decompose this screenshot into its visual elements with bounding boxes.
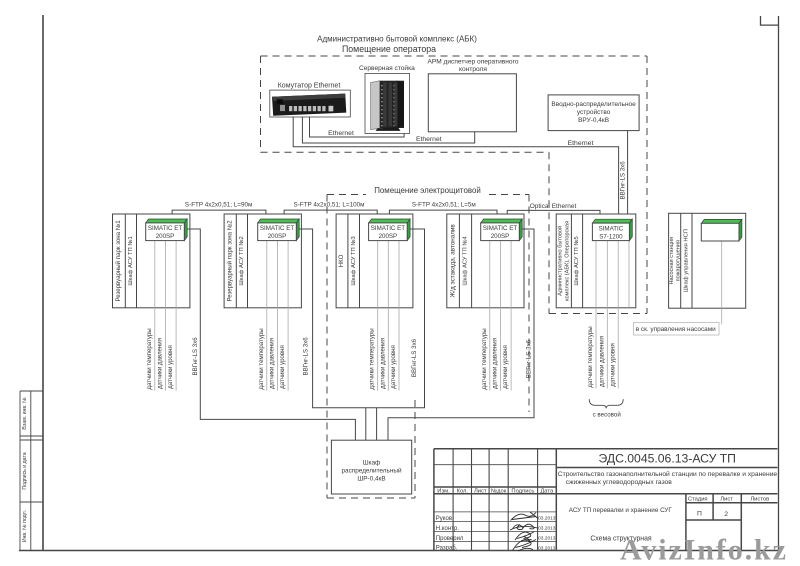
svg-text:Ethernet: Ethernet	[416, 136, 442, 143]
svg-text:03.2013: 03.2013	[538, 526, 556, 532]
svg-text:Административно бытовой компле: Административно бытовой комплекс (АБК)	[317, 35, 477, 44]
svg-text:200SP: 200SP	[268, 233, 287, 240]
svg-text:Шкаф: Шкаф	[363, 459, 381, 466]
svg-text:S-FTP 4x2x0,51; L=90м: S-FTP 4x2x0,51; L=90м	[185, 202, 252, 209]
svg-text:Подпись и дата: Подпись и дата	[22, 452, 28, 489]
svg-text:Шкаф АСУ ТП №3: Шкаф АСУ ТП №3	[351, 236, 357, 285]
svg-text:Ж/д эстакада, автоналив: Ж/д эстакада, автоналив	[449, 224, 456, 298]
svg-text:датчики давления: датчики давления	[491, 338, 498, 389]
svg-text:Шкаф АСУ ТП №4: Шкаф АСУ ТП №4	[463, 235, 469, 285]
svg-text:датчики температуры: датчики температуры	[369, 328, 376, 389]
svg-text:Листов: Листов	[750, 497, 769, 503]
svg-text:Серверная стойка: Серверная стойка	[359, 64, 415, 72]
svg-text:200SP: 200SP	[156, 233, 175, 240]
svg-text:АСУ ТП перевалки и хранение СУ: АСУ ТП перевалки и хранение СУГ	[569, 507, 673, 514]
svg-text:Optical Ethernet: Optical Ethernet	[530, 203, 577, 210]
svg-text:датчики уровня: датчики уровня	[167, 345, 174, 389]
svg-text:03.2013: 03.2013	[538, 516, 556, 522]
svg-text:SIMATIC ET: SIMATIC ET	[371, 225, 405, 232]
svg-text:ВРУ-0,4кВ: ВРУ-0,4кВ	[578, 117, 609, 124]
svg-text:ВВГнг-LS 3х6: ВВГнг-LS 3х6	[619, 161, 626, 200]
svg-text:пожаротушения: пожаротушения	[675, 240, 681, 281]
svg-text:Дата: Дата	[540, 489, 554, 495]
svg-text:Кол.: Кол.	[457, 489, 469, 495]
svg-text:датчики уровня: датчики уровня	[609, 343, 616, 387]
svg-text:SIMATIC ET: SIMATIC ET	[148, 225, 182, 232]
svg-text:SIMATIC ET: SIMATIC ET	[260, 225, 294, 232]
svg-text:SIMATIC: SIMATIC	[599, 225, 624, 232]
svg-text:распределительный: распределительный	[341, 466, 401, 474]
svg-text:контроля: контроля	[459, 66, 487, 73]
svg-text:03.2013: 03.2013	[538, 545, 556, 551]
svg-text:датчики уровня: датчики уровня	[279, 345, 286, 389]
svg-text:датчики давления: датчики давления	[268, 338, 275, 389]
svg-text:с весовой: с весовой	[593, 411, 622, 418]
svg-text:датчики давления: датчики давления	[599, 336, 606, 387]
svg-text:ВВГнг-LS 3х6: ВВГнг-LS 3х6	[192, 337, 199, 376]
svg-text:П: П	[697, 510, 702, 517]
svg-text:комплекс (АБК), Операторская: комплекс (АБК), Операторская	[564, 221, 570, 301]
svg-text:S7-1200: S7-1200	[599, 233, 623, 240]
svg-text:Шкаф АСУ ТП №5: Шкаф АСУ ТП №5	[574, 236, 580, 285]
svg-text:ШР-0,4кВ: ШР-0,4кВ	[357, 475, 385, 482]
svg-text:Насосная станция: Насосная станция	[669, 237, 675, 285]
svg-text:Комутатор Ethernet: Комутатор Ethernet	[278, 82, 341, 89]
svg-text:03.2013: 03.2013	[538, 536, 556, 542]
svg-text:200SP: 200SP	[379, 233, 398, 240]
svg-text:устройство: устройство	[577, 108, 611, 116]
svg-text:Изм.: Изм.	[437, 489, 450, 495]
svg-text:Лист: Лист	[474, 489, 487, 495]
svg-text:200SP: 200SP	[491, 233, 510, 240]
svg-text:ВВГнг-LS 3х6: ВВГнг-LS 3х6	[411, 338, 418, 377]
svg-text:SIMATIC ET: SIMATIC ET	[483, 225, 517, 232]
svg-text:Ethernet: Ethernet	[328, 130, 354, 137]
svg-text:датчики давления: датчики давления	[379, 338, 386, 389]
svg-text:Инв. № подл.: Инв. № подл.	[22, 510, 28, 542]
svg-text:АРМ диспетчер оперативного: АРМ диспетчер оперативного	[427, 59, 518, 66]
svg-text:датчики температуры: датчики температуры	[258, 328, 265, 389]
svg-text:датчики температуры: датчики температуры	[146, 328, 153, 389]
svg-text:Резервуарный парк зона №2: Резервуарный парк зона №2	[226, 220, 233, 302]
svg-text:НКО: НКО	[338, 254, 345, 267]
svg-text:Ethernet: Ethernet	[568, 140, 594, 147]
svg-text:Вводно-распределительное: Вводно-распределительное	[551, 101, 636, 108]
svg-text:Шкаф управления НСП: Шкаф управления НСП	[684, 229, 690, 292]
svg-text:Административно бытовой: Административно бытовой	[557, 226, 564, 296]
svg-text:Помещение электрощитовой: Помещение электрощитовой	[374, 186, 481, 195]
svg-text:датчики уровня: датчики уровня	[390, 345, 397, 389]
svg-text:ВВГнг-LS 3х6: ВВГнг-LS 3х6	[303, 337, 310, 376]
svg-text:Лист: Лист	[720, 497, 733, 503]
svg-text:Строительство газонаполнительн: Строительство газонаполнительной станции…	[558, 470, 778, 478]
svg-text:Проверил: Проверил	[436, 536, 464, 542]
svg-text:Шкаф АСУ ТП №1: Шкаф АСУ ТП №1	[128, 236, 134, 285]
svg-text:датчики температуры: датчики температуры	[481, 328, 488, 389]
svg-text:датчики давления: датчики давления	[156, 338, 163, 389]
svg-text:Взам. инв. №: Взам. инв. №	[22, 397, 28, 430]
svg-text:Стадия: Стадия	[688, 497, 708, 503]
svg-text:S-FTP 4x2x0,51; L=5м: S-FTP 4x2x0,51; L=5м	[412, 202, 476, 209]
svg-text:ВВГнг-LS 3х6: ВВГнг-LS 3х6	[525, 339, 532, 378]
svg-text:Помещение оператора: Помещение оператора	[342, 44, 436, 54]
svg-text:Подпись: Подпись	[511, 489, 534, 495]
svg-text:Разраб.: Разраб.	[436, 546, 458, 552]
svg-text:Шкаф АСУ ТП №2: Шкаф АСУ ТП №2	[239, 236, 245, 285]
svg-text:2: 2	[724, 511, 728, 518]
svg-text:Резервуарный парк зона №1: Резервуарный парк зона №1	[115, 220, 122, 302]
svg-text:Н.контр.: Н.контр.	[436, 526, 459, 532]
svg-text:AvizInfo.kz: AvizInfo.kz	[620, 534, 788, 566]
svg-text:ЭДС.0045.06.13-АСУ ТП: ЭДС.0045.06.13-АСУ ТП	[598, 452, 735, 466]
svg-text:датчики температуры: датчики температуры	[587, 326, 594, 387]
svg-text:в ск. управления насосами: в ск. управления насосами	[636, 326, 716, 333]
svg-text:сжиженных углеводородных газов: сжиженных углеводородных газов	[566, 479, 673, 486]
svg-text:№док: №док	[491, 489, 507, 495]
svg-text:датчики уровня: датчики уровня	[502, 345, 509, 389]
svg-text:Руков.: Руков.	[436, 516, 454, 522]
svg-text:S-FTP 4x2x0,51; L=100м: S-FTP 4x2x0,51; L=100м	[294, 202, 365, 209]
